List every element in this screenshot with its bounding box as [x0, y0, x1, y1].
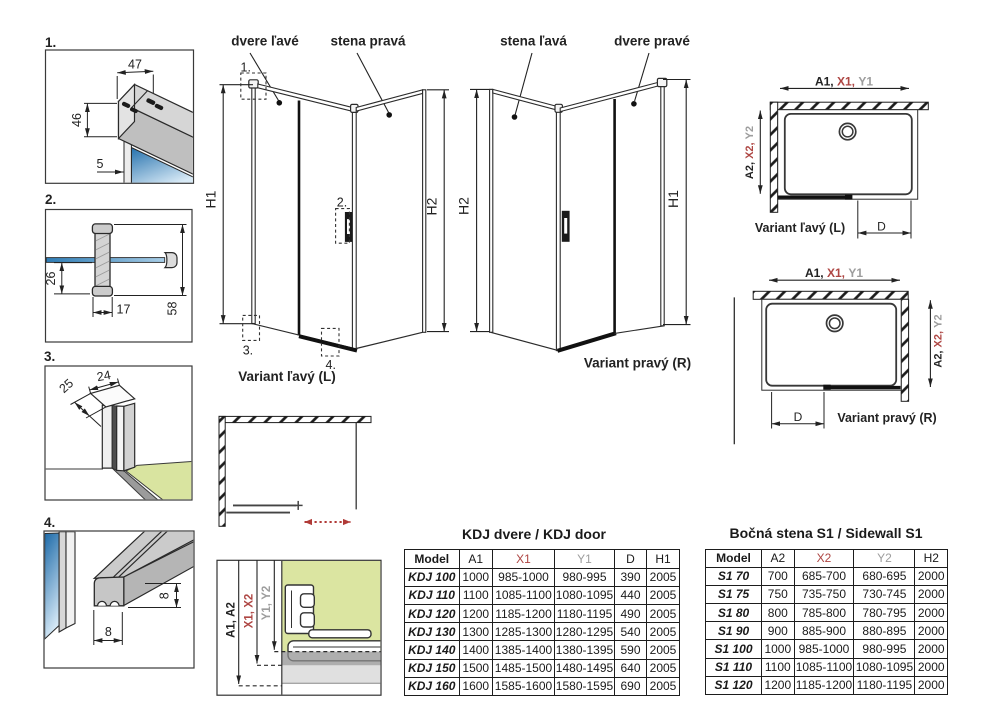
svg-text:dvere pravé: dvere pravé — [614, 34, 690, 49]
svg-text:Y1, Y2: Y1, Y2 — [261, 586, 273, 621]
svg-text:47: 47 — [128, 58, 142, 72]
svg-text:A2, X2, Y2: A2, X2, Y2 — [744, 126, 756, 179]
svg-text:2.: 2. — [45, 192, 56, 207]
svg-text:stena ľavá: stena ľavá — [500, 34, 567, 49]
svg-text:1.: 1. — [45, 35, 56, 50]
svg-text:46: 46 — [70, 113, 84, 127]
svg-text:X1, X2: X1, X2 — [244, 594, 256, 629]
svg-text:58: 58 — [166, 302, 180, 316]
svg-text:Variant ľavý (L): Variant ľavý (L) — [238, 369, 336, 384]
svg-text:H2: H2 — [424, 197, 440, 215]
svg-text:8: 8 — [105, 625, 112, 639]
svg-text:Variant pravý (R): Variant pravý (R) — [837, 411, 936, 425]
svg-text:3.: 3. — [44, 349, 55, 364]
svg-text:dvere ľavé: dvere ľavé — [231, 34, 299, 49]
svg-text:A1, X1, Y1: A1, X1, Y1 — [805, 266, 863, 280]
svg-text:D: D — [794, 410, 803, 424]
svg-text:H1: H1 — [203, 190, 219, 208]
svg-text:2.: 2. — [337, 196, 347, 210]
svg-text:A2, X2, Y2: A2, X2, Y2 — [933, 314, 945, 367]
svg-text:26: 26 — [44, 272, 58, 286]
svg-text:A1, X1, Y1: A1, X1, Y1 — [815, 75, 873, 89]
svg-text:H2: H2 — [456, 197, 472, 215]
svg-text:8: 8 — [158, 592, 172, 599]
svg-text:Variant ľavý (L): Variant ľavý (L) — [755, 221, 845, 235]
svg-text:5: 5 — [97, 157, 104, 171]
svg-text:17: 17 — [117, 303, 131, 317]
svg-text:stena pravá: stena pravá — [330, 34, 406, 49]
svg-text:1.: 1. — [241, 61, 251, 75]
svg-text:H1: H1 — [665, 190, 681, 208]
svg-text:Variant pravý (R): Variant pravý (R) — [584, 356, 691, 371]
svg-text:4.: 4. — [44, 515, 55, 530]
svg-text:D: D — [877, 220, 886, 234]
svg-text:24: 24 — [96, 368, 112, 384]
svg-text:3.: 3. — [243, 344, 253, 358]
svg-text:A1, A2: A1, A2 — [226, 602, 238, 638]
